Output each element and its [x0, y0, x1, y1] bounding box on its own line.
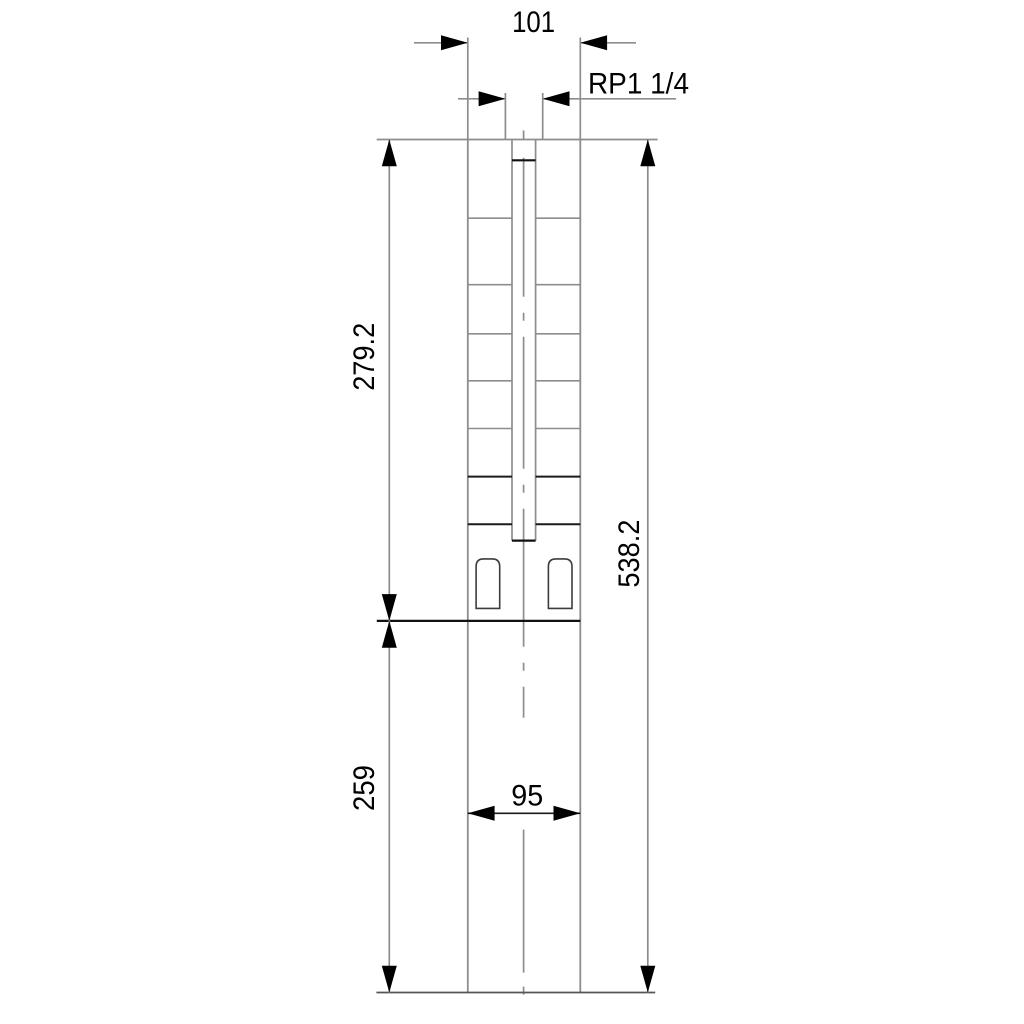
svg-text:RP1 1/4: RP1 1/4 [588, 68, 689, 101]
svg-text:538.2: 538.2 [613, 520, 646, 588]
svg-text:279.2: 279.2 [348, 323, 381, 391]
svg-text:101: 101 [512, 6, 555, 39]
svg-text:259: 259 [348, 765, 381, 811]
svg-text:95: 95 [511, 779, 543, 812]
